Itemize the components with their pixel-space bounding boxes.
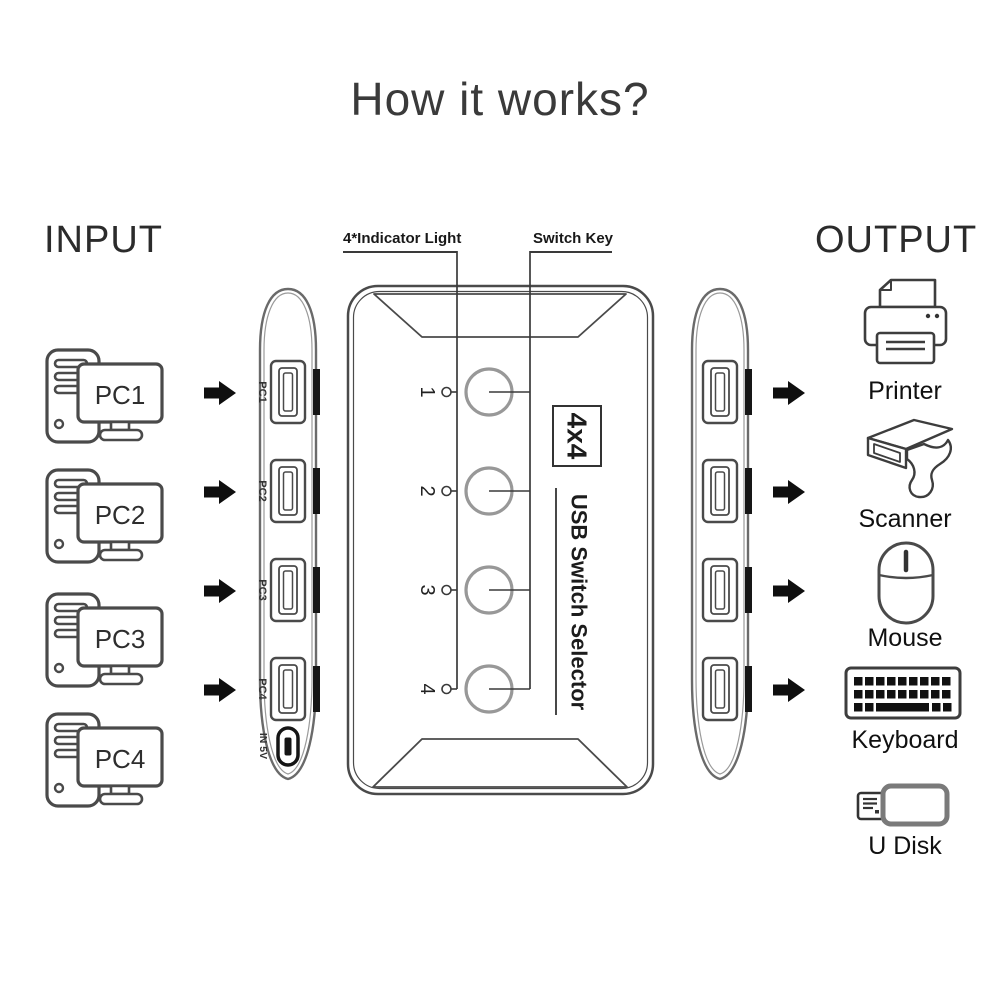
arrow-right-icon bbox=[772, 677, 806, 703]
pc2-icon: PC2 bbox=[44, 466, 166, 566]
arrow-right-icon bbox=[772, 380, 806, 406]
usb-switch-device: 1 2 3 4 4x4 USB Switch Selector bbox=[330, 250, 670, 810]
scanner-grip bbox=[907, 440, 951, 497]
usb-port-pc4-icon bbox=[271, 658, 305, 720]
pc1-icon: PC1 bbox=[44, 346, 166, 446]
scanner-icon bbox=[856, 412, 960, 508]
arrow-right-icon bbox=[772, 479, 806, 505]
arrow-right-icon bbox=[203, 578, 237, 604]
button-number-4: 4 bbox=[416, 683, 438, 694]
switch-key-callout: Switch Key bbox=[533, 230, 613, 247]
port-label-pc2: PC2 bbox=[256, 480, 268, 501]
panel-tab bbox=[745, 468, 752, 514]
mouse-label: Mouse bbox=[835, 624, 975, 653]
panel-tab bbox=[745, 567, 752, 613]
port-label-pc1: PC1 bbox=[256, 381, 268, 402]
pc2-label: PC2 bbox=[95, 500, 146, 530]
arrow-right-icon bbox=[203, 677, 237, 703]
panel-tab bbox=[745, 666, 752, 712]
panel-tab bbox=[745, 369, 752, 415]
indicator-light-callout: 4*Indicator Light bbox=[343, 230, 461, 247]
pc3-icon: PC3 bbox=[44, 590, 166, 690]
mouse-icon bbox=[877, 541, 935, 625]
usb-port-out3-icon bbox=[703, 559, 737, 621]
pc3-label: PC3 bbox=[95, 624, 146, 654]
micro-usb-port-icon bbox=[278, 728, 298, 765]
indicator-light-icon bbox=[442, 388, 451, 397]
usb-port-pc1-icon bbox=[271, 361, 305, 423]
badge-4x4: 4x4 bbox=[562, 413, 593, 460]
indicator-light-icon bbox=[442, 685, 451, 694]
port-label-pc3: PC3 bbox=[256, 579, 268, 600]
arrow-right-icon bbox=[772, 578, 806, 604]
spacebar-key bbox=[876, 703, 929, 712]
usb-port-pc2-icon bbox=[271, 460, 305, 522]
page-title: How it works? bbox=[0, 72, 1000, 126]
port-label-pc4: PC4 bbox=[256, 678, 268, 700]
keyboard-label: Keyboard bbox=[835, 726, 975, 755]
scanner-label: Scanner bbox=[835, 505, 975, 534]
panel-tab bbox=[313, 468, 320, 514]
side-panel-output bbox=[680, 280, 760, 795]
arrow-right-icon bbox=[203, 380, 237, 406]
keyboard-keys bbox=[854, 677, 952, 712]
input-heading: INPUT bbox=[44, 219, 163, 262]
printer-label: Printer bbox=[835, 377, 975, 406]
device-name: USB Switch Selector bbox=[567, 494, 592, 711]
keyboard-icon bbox=[843, 664, 965, 722]
side-panel-input: PC1 PC2 PC3 PC4 IN 5V bbox=[248, 280, 328, 795]
udisk-body bbox=[883, 786, 947, 824]
panel-tab bbox=[313, 567, 320, 613]
button-number-1: 1 bbox=[416, 386, 438, 397]
usb-port-out4-icon bbox=[703, 658, 737, 720]
indicator-light-icon bbox=[442, 487, 451, 496]
pc1-label: PC1 bbox=[95, 380, 146, 410]
printer-icon bbox=[858, 278, 952, 366]
usb-port-out2-icon bbox=[703, 460, 737, 522]
usb-port-pc3-icon bbox=[271, 559, 305, 621]
udisk-icon bbox=[855, 782, 951, 828]
indicator-light-icon bbox=[442, 586, 451, 595]
power-port-label: IN 5V bbox=[257, 733, 269, 759]
panel-tab bbox=[313, 369, 320, 415]
diagram-canvas: How it works? INPUT OUTPUT 4*Indicator L… bbox=[0, 0, 1000, 1000]
button-number-2: 2 bbox=[416, 485, 438, 496]
udisk-label: U Disk bbox=[835, 832, 975, 861]
button-number-3: 3 bbox=[416, 584, 438, 595]
pc4-icon: PC4 bbox=[44, 710, 166, 810]
output-heading: OUTPUT bbox=[815, 219, 977, 262]
arrow-right-icon bbox=[203, 479, 237, 505]
usb-port-out1-icon bbox=[703, 361, 737, 423]
pc4-label: PC4 bbox=[95, 744, 146, 774]
panel-tab bbox=[313, 666, 320, 712]
